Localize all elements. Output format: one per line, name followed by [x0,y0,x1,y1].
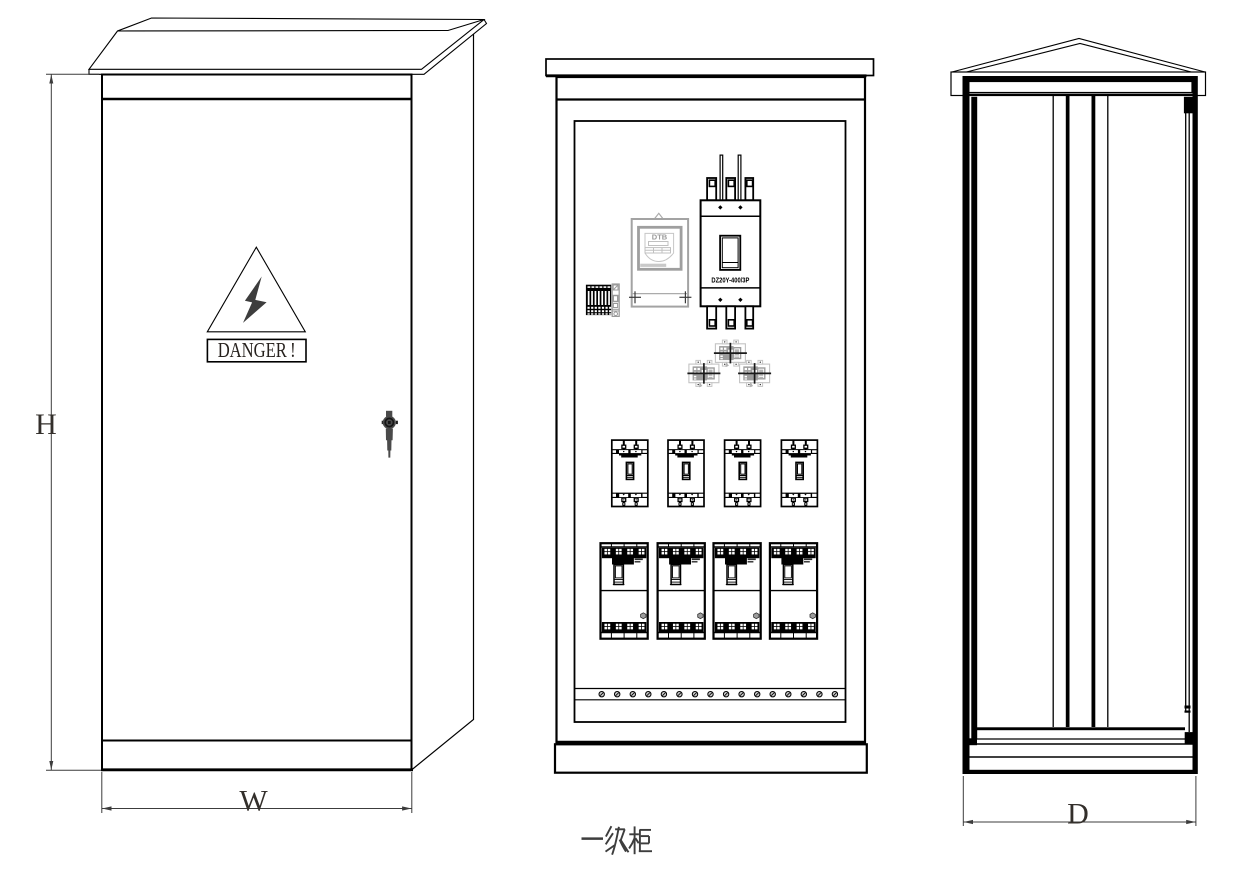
svg-text:D: D [1067,798,1089,831]
svg-text:W: W [239,785,268,818]
svg-text:H: H [35,408,57,441]
svg-text:DZ20Y-400/3P: DZ20Y-400/3P [711,278,749,285]
svg-text:DANGER !: DANGER ! [218,338,296,362]
svg-text:DTB: DTB [652,233,668,242]
